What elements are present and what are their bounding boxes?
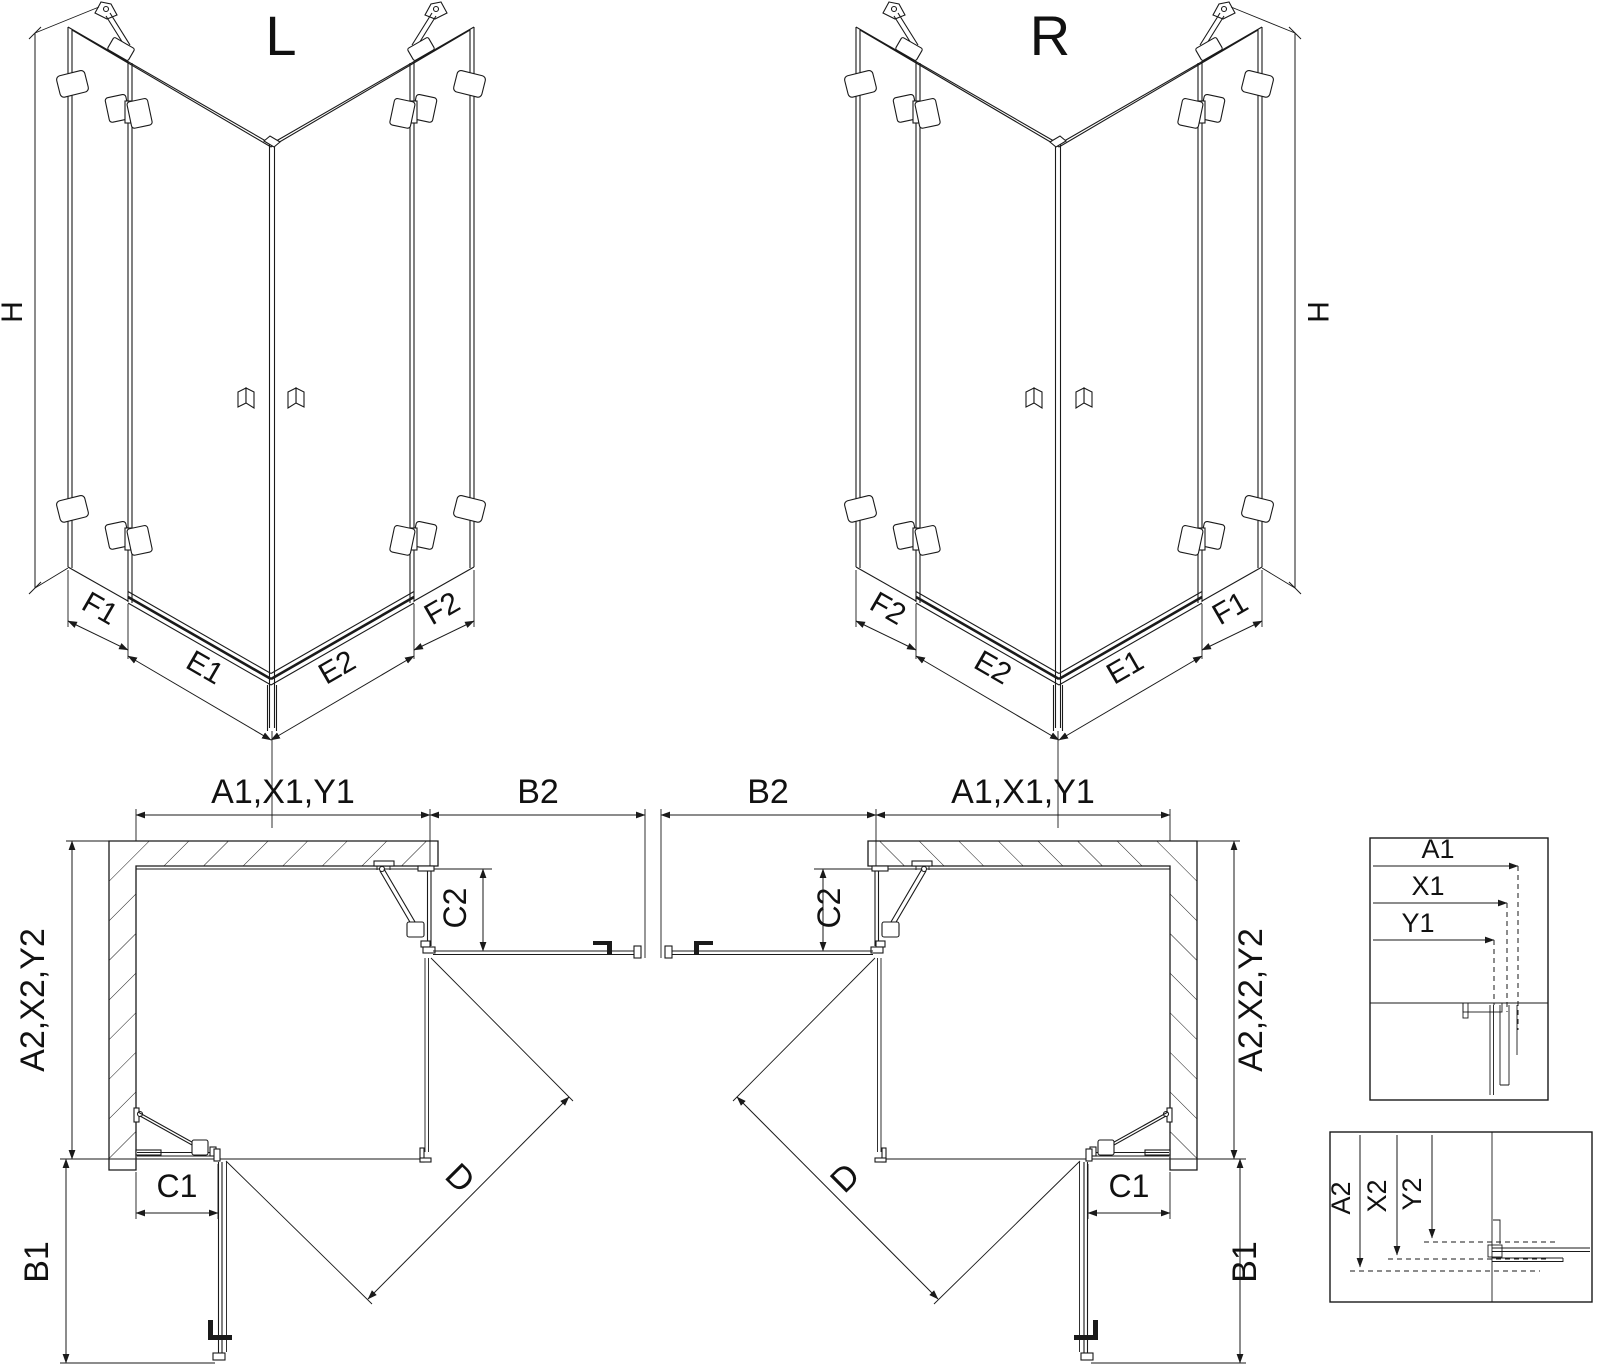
label-f1-right: F1: [1207, 586, 1254, 632]
variant-label-right: R: [1030, 4, 1070, 67]
label-a2x2y2-planright: A2,X2,Y2: [1232, 928, 1270, 1072]
label-y2-detail: Y2: [1397, 1177, 1427, 1210]
wall-profile-section: [1488, 1220, 1590, 1262]
label-a1-detail: A1: [1421, 834, 1454, 864]
label-f2-left: F2: [419, 586, 466, 632]
plan-view-left: A1,X1,Y1 B2 C2 A2,X2,Y2 C1 B1 D: [14, 773, 645, 1363]
label-a2x2y2-planleft: A2,X2,Y2: [14, 928, 52, 1072]
variant-label-left: L: [265, 4, 296, 67]
label-h-left: H: [0, 301, 29, 323]
label-f2-right: F2: [864, 586, 911, 632]
label-f1-left: F1: [76, 586, 123, 632]
label-a1x1y1-planleft: A1,X1,Y1: [211, 773, 355, 811]
label-y1-detail: Y1: [1401, 908, 1434, 938]
iso-view-left: L H F1 E1 E2 F2: [0, 2, 486, 828]
shower-enclosure-diagram: L H F1 E1 E2 F2 R H F2 E2 E1 F1 A1,X1,Y1…: [0, 0, 1600, 1371]
label-b2-planleft: B2: [517, 773, 559, 811]
label-h-right: H: [1301, 301, 1334, 323]
label-a2-detail: A2: [1326, 1181, 1356, 1214]
iso-view-right: R H F2 E2 E1 F1: [844, 2, 1334, 828]
technical-drawing-page: L H F1 E1 E2 F2 R H F2 E2 E1 F1 A1,X1,Y1…: [0, 0, 1600, 1371]
label-b2-planright: B2: [747, 773, 789, 811]
label-c2-planright: C2: [811, 888, 847, 929]
label-x1-detail: X1: [1411, 871, 1444, 901]
label-a1x1y1-planright: A1,X1,Y1: [951, 773, 1095, 811]
plan-view-right: B2 A1,X1,Y1 C2 A2,X2,Y2 C1 B1 D: [661, 773, 1270, 1363]
label-c1-planleft: C1: [157, 1168, 198, 1204]
label-x2-detail: X2: [1362, 1179, 1392, 1212]
label-d-planright: D: [823, 1156, 867, 1200]
label-c1-planright: C1: [1109, 1168, 1150, 1204]
label-d-planleft: D: [438, 1156, 482, 1200]
wall-profile-section: [1463, 1003, 1517, 1095]
detail-box-a1x1y1: A1 X1 Y1: [1370, 834, 1548, 1100]
label-b1-planleft: B1: [18, 1241, 56, 1283]
detail-box-a2x2y2: A2 X2 Y2: [1326, 1132, 1592, 1302]
label-c2-planleft: C2: [437, 888, 473, 929]
label-b1-planright: B1: [1226, 1241, 1264, 1283]
